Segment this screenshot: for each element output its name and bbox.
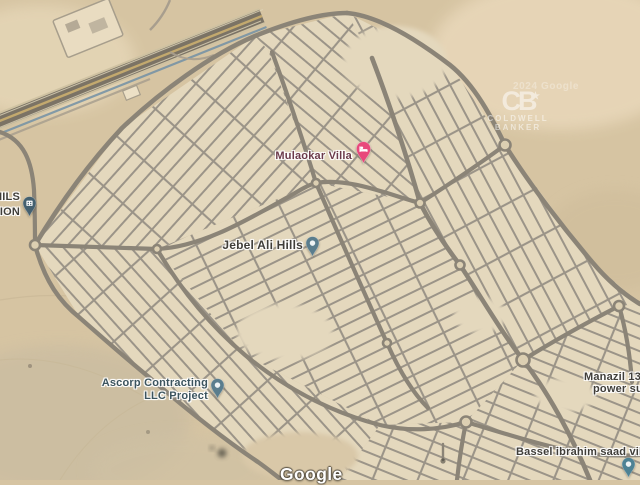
building-pin-icon (23, 197, 36, 217)
map-viewport[interactable]: Mulaokar Villa Jebel Ali Hills Ascorp Co… (0, 0, 640, 480)
label-ascorp-line1: Ascorp Contracting (102, 377, 208, 390)
bassel-villa-pin[interactable] (621, 457, 636, 483)
building-icon (26, 201, 32, 206)
label-manazil-line2: power su (584, 383, 640, 395)
label-station-line2: TION (0, 205, 20, 220)
place-pin-icon (306, 237, 319, 257)
jebel-ali-hills-pin[interactable] (305, 236, 320, 262)
lodging-pin-icon (356, 142, 370, 164)
label-jebel-ali-hills[interactable]: Jebel Ali Hills (222, 239, 303, 252)
ascorp-project-pin[interactable] (210, 378, 225, 404)
label-ascorp-line2: LLC Project (102, 390, 208, 403)
label-station-cutoff[interactable]: HILS TION (0, 190, 20, 220)
place-pin-icon (211, 379, 224, 399)
satellite-map-canvas[interactable] (0, 0, 640, 480)
mulaokar-villa-pin[interactable] (355, 141, 372, 169)
label-ascorp-contracting[interactable]: Ascorp Contracting LLC Project (102, 377, 208, 403)
label-mulaokar-villa[interactable]: Mulaokar Villa (275, 150, 352, 163)
label-station-line1: HILS (0, 190, 20, 205)
label-manazil-cutoff[interactable]: Manazil 132 power su (584, 371, 640, 395)
station-pin[interactable] (22, 196, 37, 222)
label-manazil-line1: Manazil 132 (584, 371, 640, 383)
place-pin-icon (622, 458, 635, 478)
